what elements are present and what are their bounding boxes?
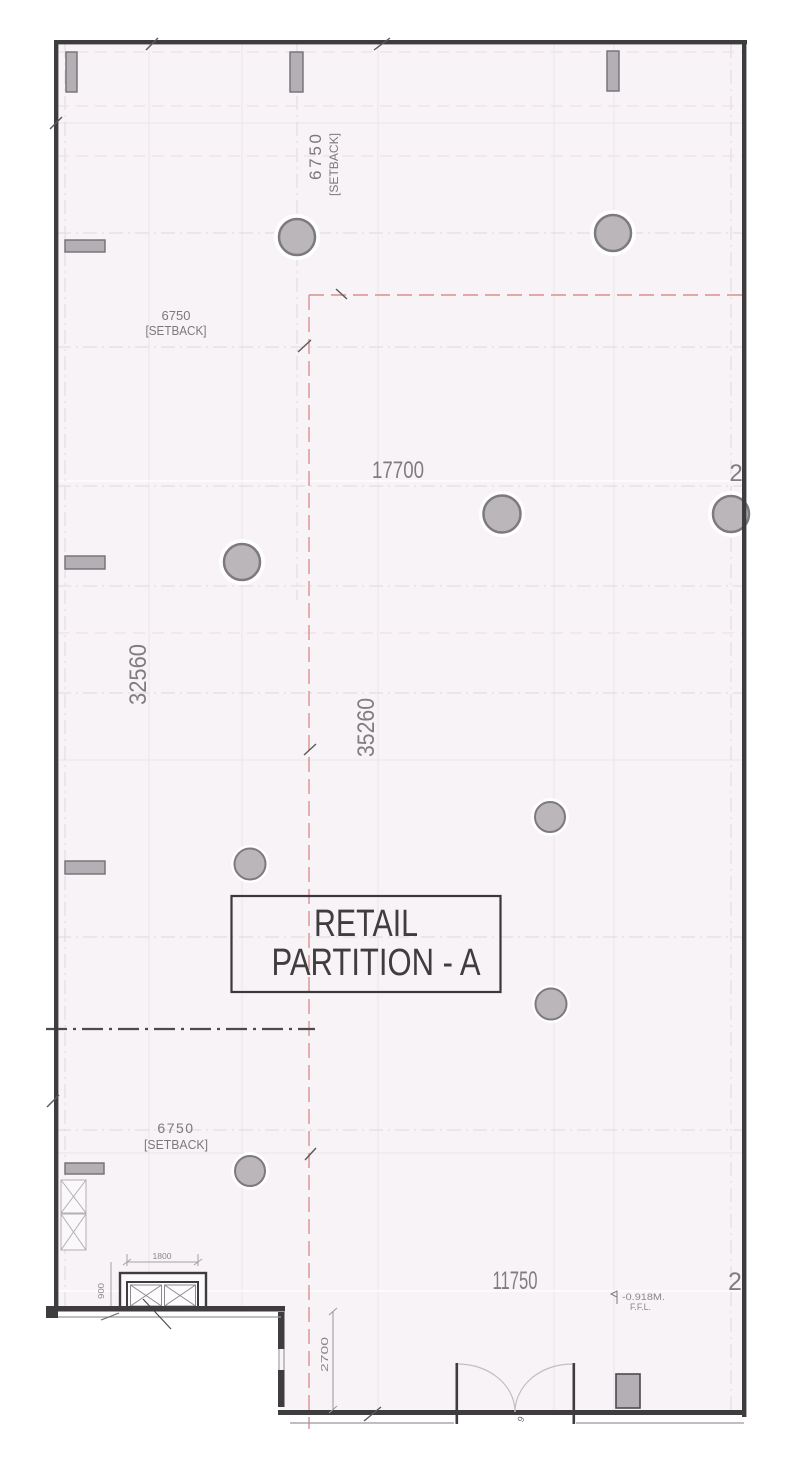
svg-text:9: 9: [515, 1415, 526, 1424]
svg-text:1800: 1800: [153, 1251, 172, 1261]
svg-text:[SETBACK]: [SETBACK]: [144, 1137, 208, 1152]
svg-text:32560: 32560: [125, 644, 152, 705]
svg-text:F.F.L.: F.F.L.: [630, 1302, 651, 1312]
svg-text:2: 2: [728, 1268, 742, 1296]
svg-text:[SETBACK]: [SETBACK]: [146, 323, 207, 338]
svg-text:900: 900: [96, 1283, 106, 1299]
svg-text:35260: 35260: [353, 698, 380, 757]
svg-text:11750: 11750: [493, 1267, 538, 1295]
svg-text:2: 2: [729, 460, 742, 487]
svg-text:-0.918M.: -0.918M.: [622, 1292, 665, 1302]
svg-text:6750: 6750: [162, 308, 191, 323]
svg-text:RETAIL: RETAIL: [314, 903, 418, 945]
svg-text:2700: 2700: [320, 1336, 331, 1372]
svg-text:PARTITION - A: PARTITION - A: [272, 942, 482, 984]
svg-text:[SETBACK]: [SETBACK]: [327, 133, 341, 196]
svg-text:17700: 17700: [372, 457, 424, 484]
svg-text:6750: 6750: [157, 1120, 194, 1136]
